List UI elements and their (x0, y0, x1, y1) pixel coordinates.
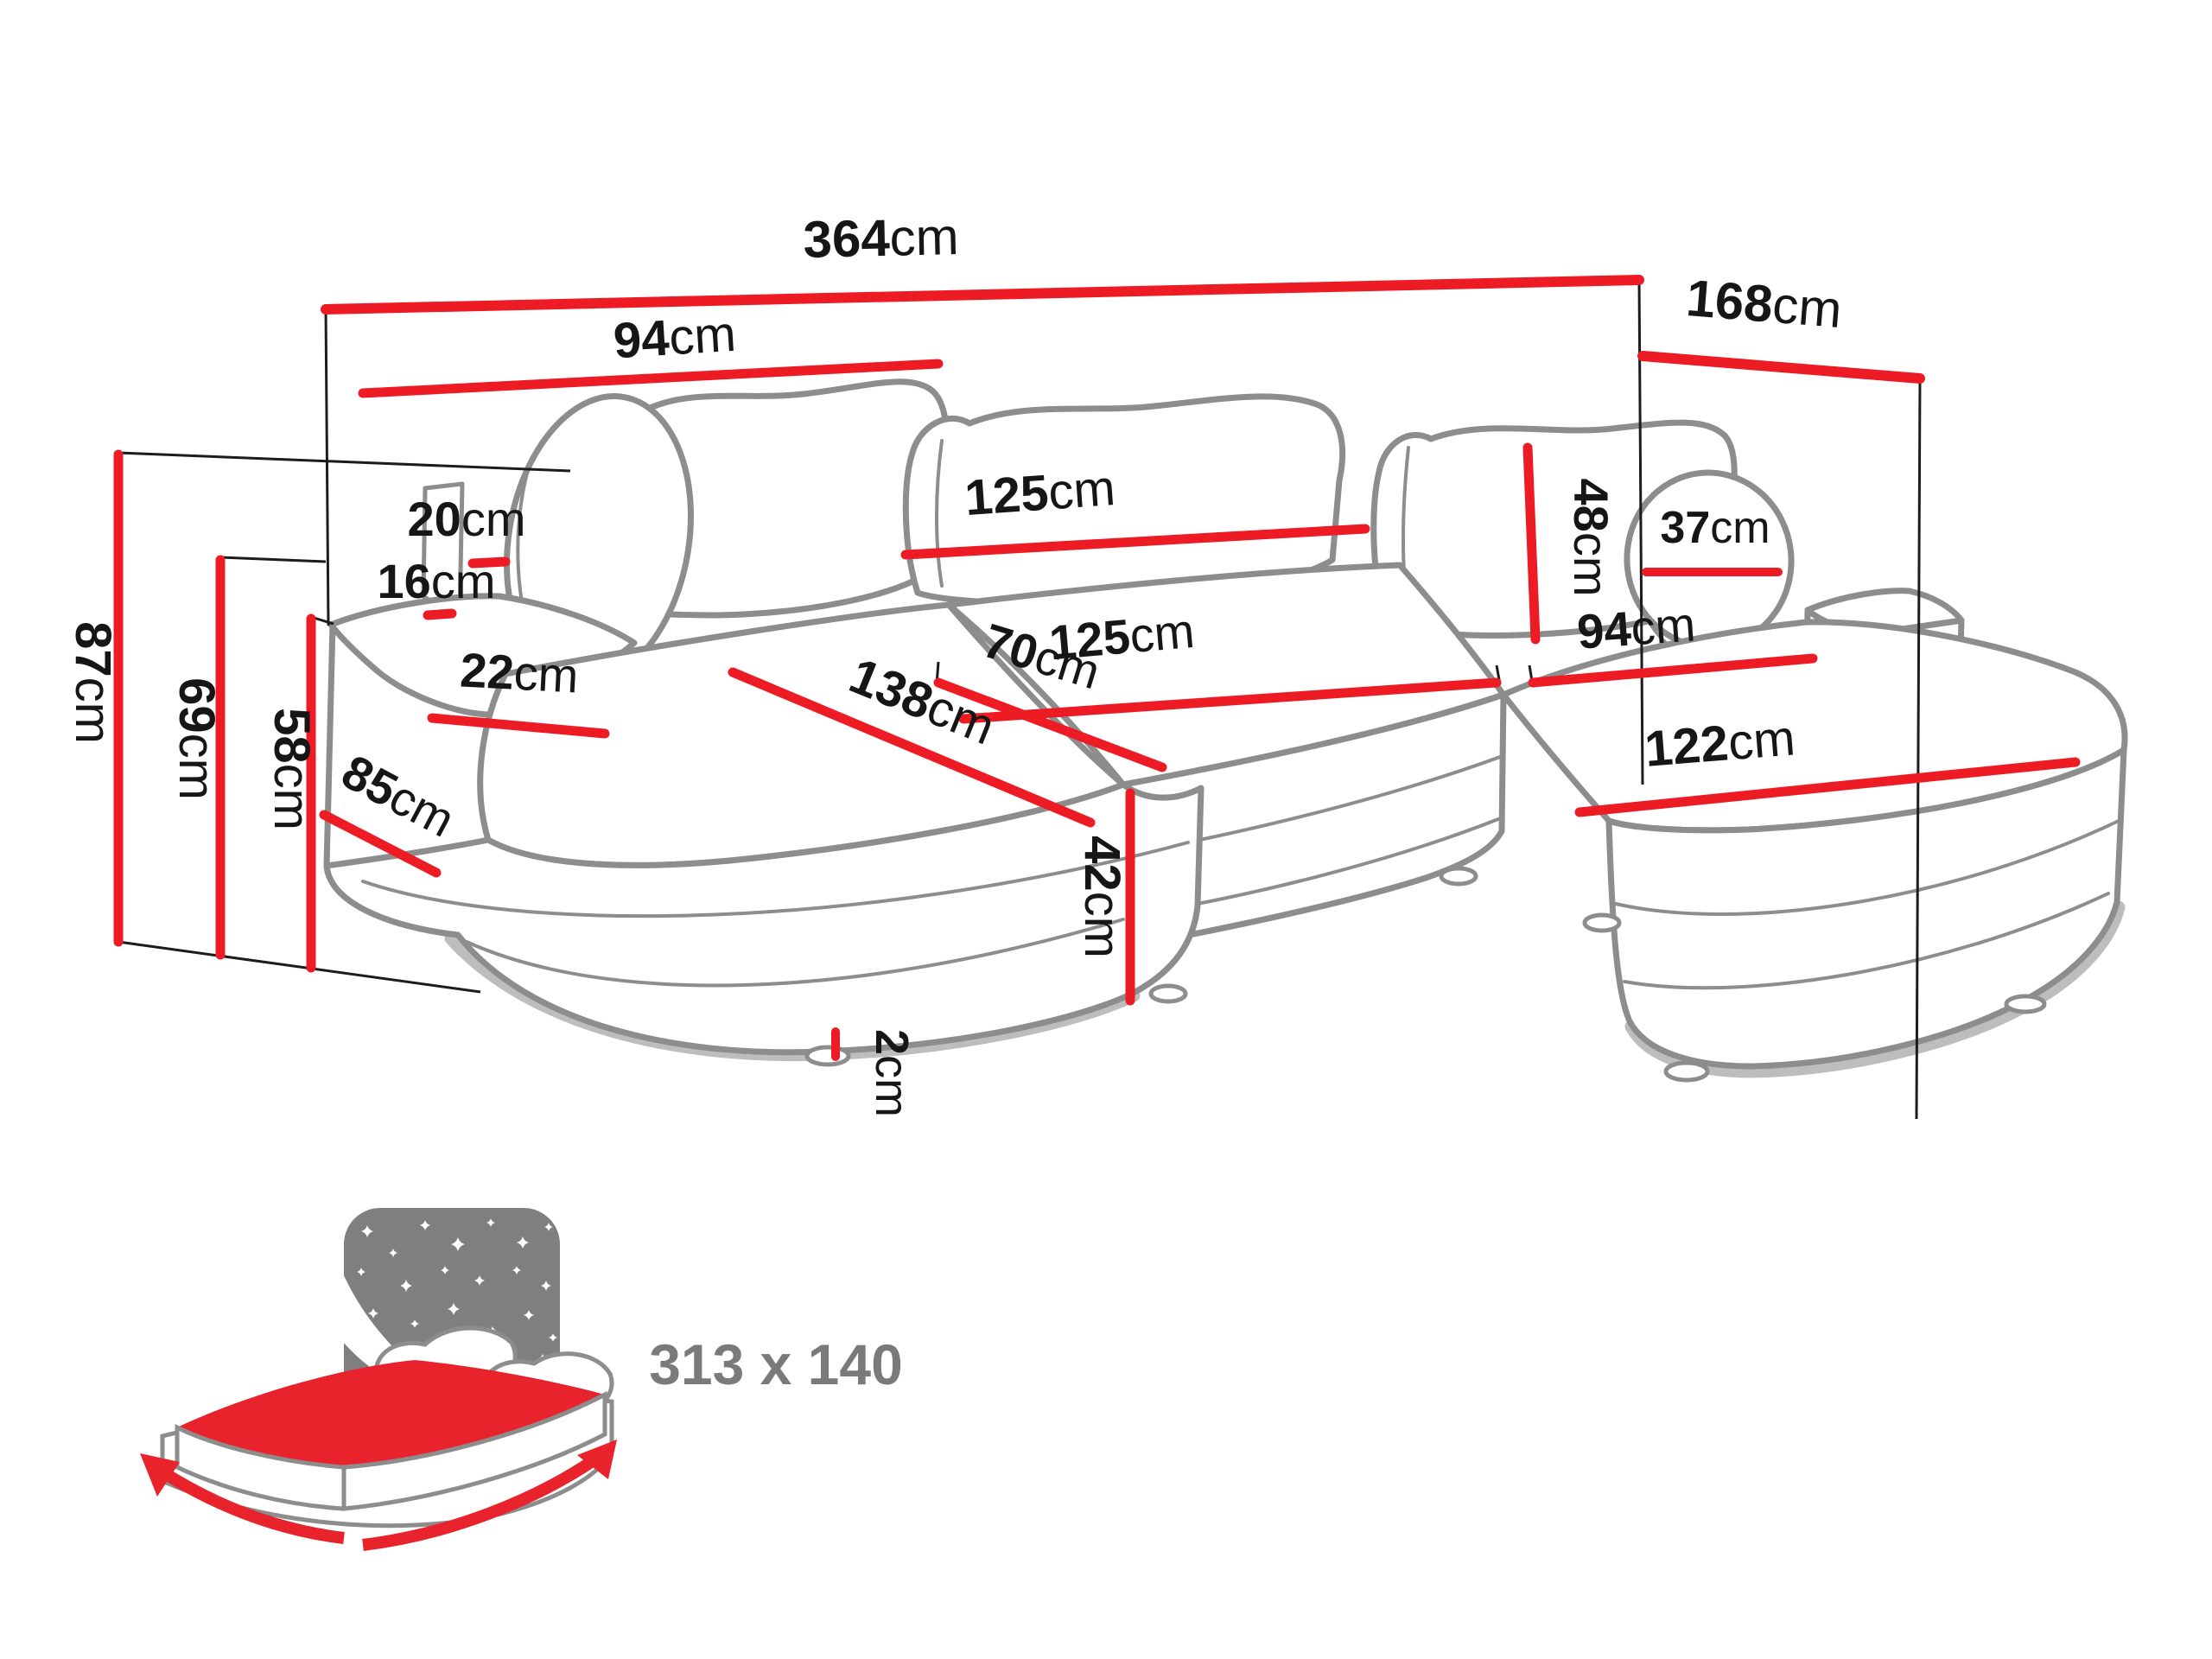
svg-text:364cm: 364cm (803, 207, 959, 269)
svg-text:16cm: 16cm (378, 554, 496, 608)
sofa-leg (1441, 868, 1476, 884)
svg-text:48cm: 48cm (1564, 479, 1618, 597)
svg-text:37cm: 37cm (1660, 503, 1770, 553)
dim-label-cushion-height-48: 48cm (1564, 479, 1618, 597)
dim-label-right-seat-94: 94cm (1575, 596, 1697, 658)
dim-label-armrest-22: 22cm (459, 642, 580, 702)
sofa-dimension-diagram: 364cm 168cm 94cm 125cm 48cm 37cm 94cm 12… (0, 0, 2212, 1659)
dim-label-thickness-20: 20cm (408, 492, 526, 546)
svg-text:69cm: 69cm (168, 677, 225, 800)
dim-label-total-width: 364cm (803, 207, 959, 269)
dim-label-left-cushion: 94cm (612, 306, 738, 370)
svg-text:122cm: 122cm (1643, 709, 1797, 777)
measure-tick-16 (428, 613, 452, 615)
guide-floor-left (118, 942, 480, 992)
guide-vertical-left (326, 308, 328, 626)
dim-label-height-58: 58cm (264, 708, 320, 830)
dim-label-gap-16: 16cm (378, 554, 496, 608)
svg-text:58cm: 58cm (264, 708, 320, 830)
svg-text:42cm: 42cm (1074, 836, 1130, 958)
svg-text:2cm: 2cm (866, 1029, 918, 1117)
guide-87-top (118, 453, 570, 471)
svg-text:94cm: 94cm (612, 306, 738, 370)
sleeping-function-icon: 313 x 140 (140, 1208, 903, 1545)
svg-text:87cm: 87cm (65, 621, 121, 744)
dim-label-round-pillow-37: 37cm (1660, 503, 1770, 553)
dim-label-middle-cushion: 125cm (963, 460, 1117, 526)
sleeping-area-size: 313 x 140 (649, 1332, 903, 1396)
sofa-leg (1585, 915, 1619, 931)
svg-text:22cm: 22cm (459, 642, 580, 702)
dim-label-height-69: 69cm (168, 677, 225, 800)
dim-label-seat-height-42: 42cm (1074, 836, 1130, 958)
guide-69-top (220, 557, 326, 562)
dim-label-height-87: 87cm (65, 621, 121, 744)
sofa-leg (807, 1047, 849, 1065)
dim-label-total-depth: 168cm (1684, 269, 1844, 339)
sofa-leg (1666, 1063, 1707, 1080)
svg-text:168cm: 168cm (1684, 269, 1844, 339)
dim-label-right-chaise-122: 122cm (1643, 709, 1797, 777)
dim-label-leg-2: 2cm (866, 1029, 918, 1117)
svg-text:125cm: 125cm (963, 460, 1117, 526)
measure-line-total-width (326, 280, 1639, 309)
measure-line-total-depth (1643, 356, 1920, 378)
svg-text:20cm: 20cm (408, 492, 526, 546)
sofa-leg (1151, 986, 1185, 1001)
svg-text:94cm: 94cm (1575, 596, 1697, 658)
sofa-leg (2006, 996, 2044, 1012)
